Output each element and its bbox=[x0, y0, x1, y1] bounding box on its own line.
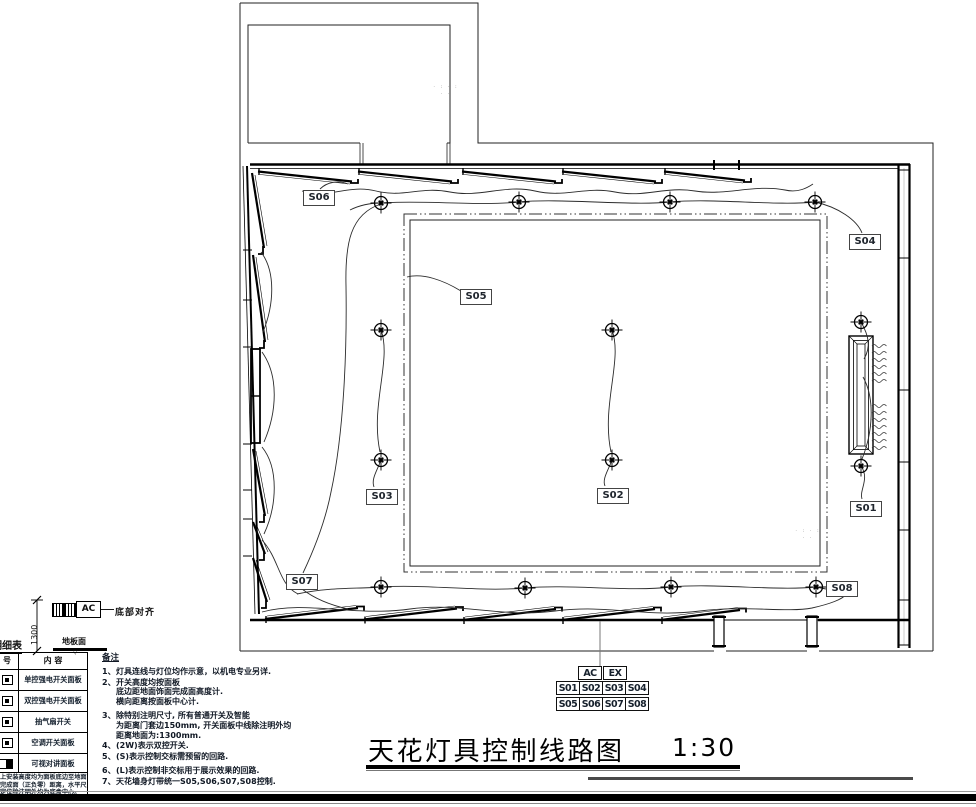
switch-zone-label-s04: S04 bbox=[849, 234, 881, 250]
controller-switch-s04: S04 bbox=[625, 681, 649, 695]
drawing-title: 天花灯具控制线路图 bbox=[368, 731, 625, 768]
feature-hatch bbox=[872, 345, 887, 450]
legend-symbol-single-switch bbox=[2, 675, 13, 685]
note-item: 4、 (2W)表示双控开关. bbox=[102, 741, 352, 751]
dimension-1300: 1300 bbox=[30, 617, 40, 645]
outer-boundary bbox=[240, 3, 933, 651]
ac-panel-icon: AC bbox=[76, 601, 101, 618]
controller-switch-s03: S03 bbox=[602, 681, 626, 695]
note-item: 2、 开关高度均按面板 底边距地面饰面完成面高度计. 横向距离按面板中心计. bbox=[102, 678, 352, 707]
controller-switch-s01: S01 bbox=[556, 681, 580, 695]
note-item: 1、 灯具连线与灯位均作示意，以机电专业另详. bbox=[102, 667, 352, 677]
switch-zone-label-s02: S02 bbox=[597, 488, 629, 504]
legend-symbol-intercom bbox=[0, 759, 13, 769]
notes-title: 备注 bbox=[102, 654, 352, 664]
note-item: 3、 除特别注明尺寸, 所有普通开关及智能 为距离门套边150mm, 开关面板中… bbox=[102, 711, 352, 740]
door-posts bbox=[712, 616, 819, 647]
switch-zone-label-s01: S01 bbox=[850, 501, 882, 517]
legend-table: 号 内 容 单控强电开关面板 双控强电开关面板 抽气扇开关 空调开关面板 可视对… bbox=[0, 652, 88, 773]
title-underline bbox=[366, 765, 740, 769]
switch-zone-label-s08: S08 bbox=[826, 581, 858, 597]
page-border-thin2 bbox=[0, 803, 976, 804]
drawing-sheet: { "plan": { "switch_labels": { "s01": "S… bbox=[0, 0, 976, 807]
switch-zone-label-s05: S05 bbox=[460, 289, 492, 305]
note-item: 6、 (L)表示控制非交标用于展示效果的回路. bbox=[102, 766, 352, 776]
faint-annotation-upper-room: · : · : · · bbox=[428, 84, 464, 98]
switch-zone-label-s03: S03 bbox=[366, 489, 398, 505]
title-underline-thin bbox=[366, 770, 740, 771]
page-border-thick bbox=[0, 794, 976, 801]
legend-row-label: 单控强电开关面板 bbox=[19, 670, 87, 690]
legend-row: 双控强电开关面板 bbox=[0, 690, 88, 711]
legend-row-label: 抽气扇开关 bbox=[19, 712, 87, 732]
track-lights-top bbox=[258, 168, 751, 184]
note-item: 7、 天花墙身灯带统一S05,S06,S07,S08控制. bbox=[102, 777, 352, 787]
page-border-thin bbox=[0, 791, 976, 792]
legend-col-content: 内 容 bbox=[19, 655, 87, 666]
controller-ac-cell: AC bbox=[578, 666, 602, 680]
controller-switch-s07: S07 bbox=[602, 697, 626, 711]
inner-ceiling-rect bbox=[404, 214, 827, 572]
controller-switch-s06: S06 bbox=[579, 697, 603, 711]
notes-block: 备注 1、 灯具连线与灯位均作示意，以机电专业另详. 2、 开关高度均按面板 底… bbox=[102, 654, 352, 788]
bottom-align-note: 底部对齐 bbox=[115, 605, 155, 618]
track-lights-bottom bbox=[265, 606, 746, 625]
footnote-line: 上安装高度均为面板底边至地面 bbox=[0, 774, 87, 782]
legend-row: 空调开关面板 bbox=[0, 732, 88, 753]
legend-row: 单控强电开关面板 bbox=[0, 669, 88, 690]
legend-row-label: 双控强电开关面板 bbox=[19, 691, 87, 711]
upper-room bbox=[248, 25, 450, 164]
legend-row: 可视对讲面板 bbox=[0, 753, 88, 774]
switch-zone-label-s07: S07 bbox=[286, 574, 318, 590]
legend-symbol-double-switch bbox=[2, 696, 13, 706]
legend-row-label: 可视对讲面板 bbox=[19, 754, 87, 774]
panel-icon bbox=[52, 603, 64, 617]
floor-line bbox=[53, 648, 107, 651]
panel-icon bbox=[64, 603, 76, 617]
controller-switch-s05: S05 bbox=[556, 697, 580, 711]
legend-row-label: 空调开关面板 bbox=[19, 733, 87, 753]
floor-surface-label: 地板面 bbox=[62, 636, 86, 647]
faint-annotation-lower-right: · : · : · · bbox=[790, 528, 826, 542]
legend-symbol-fan-switch bbox=[2, 717, 13, 727]
wiring bbox=[261, 182, 871, 613]
switch-zone-label-s06: S06 bbox=[303, 190, 335, 206]
note-item: 5、 (S)表示控制交标需预留的回路. bbox=[102, 752, 352, 762]
legend-row: 抽气扇开关 bbox=[0, 711, 88, 732]
controller-ex-cell: EX bbox=[603, 666, 627, 680]
controller-switch-s08: S08 bbox=[625, 697, 649, 711]
drawing-scale: 1:30 bbox=[672, 733, 736, 762]
titleblock-rule bbox=[588, 777, 913, 780]
legend-col-symbol: 号 bbox=[3, 655, 11, 666]
controller-switch-s02: S02 bbox=[579, 681, 603, 695]
legend-symbol-ac-switch bbox=[2, 738, 13, 748]
